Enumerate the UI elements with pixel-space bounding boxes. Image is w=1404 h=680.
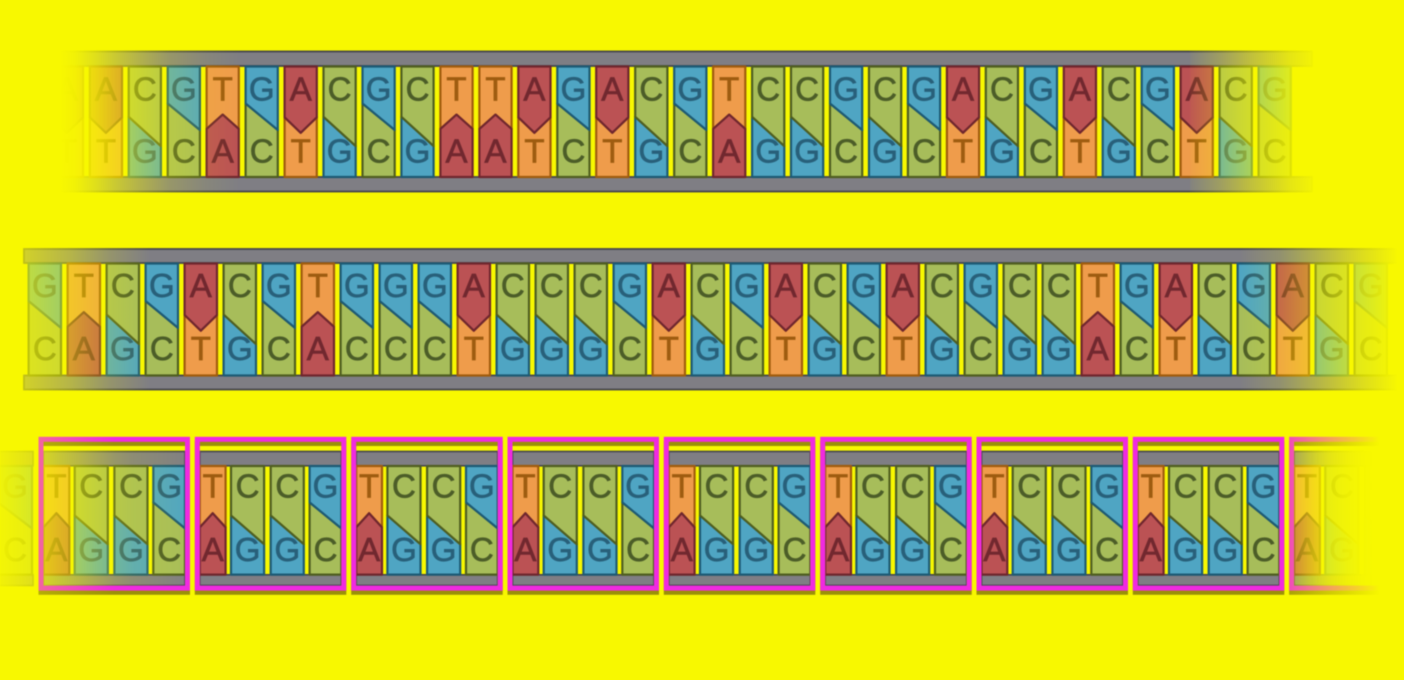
svg-text:T: T <box>1141 468 1161 505</box>
svg-text:T: T <box>515 468 535 505</box>
svg-text:G: G <box>1124 267 1150 304</box>
svg-text:G: G <box>1212 531 1238 568</box>
svg-text:A: A <box>1069 71 1091 108</box>
svg-text:C: C <box>367 133 391 170</box>
svg-text:C: C <box>345 330 369 367</box>
svg-text:C: C <box>314 531 338 568</box>
svg-text:G: G <box>1202 330 1228 367</box>
svg-text:G: G <box>968 267 994 304</box>
svg-text:A: A <box>190 267 212 304</box>
svg-text:C: C <box>1008 267 1032 304</box>
svg-text:G: G <box>755 133 781 170</box>
svg-text:C: C <box>250 133 274 170</box>
svg-text:A: A <box>202 531 224 568</box>
svg-text:C: C <box>1095 531 1119 568</box>
svg-text:C: C <box>540 267 564 304</box>
svg-text:A: A <box>358 531 380 568</box>
svg-text:C: C <box>756 71 780 108</box>
svg-text:T: T <box>524 133 544 170</box>
svg-text:A: A <box>1140 531 1162 568</box>
svg-text:T: T <box>1070 133 1090 170</box>
svg-text:G: G <box>561 71 587 108</box>
svg-text:G: G <box>235 531 261 568</box>
svg-text:G: G <box>149 267 175 304</box>
svg-text:C: C <box>1125 330 1149 367</box>
svg-text:C: C <box>548 468 572 505</box>
svg-text:C: C <box>275 468 299 505</box>
svg-text:A: A <box>983 531 1005 568</box>
svg-text:C: C <box>852 330 876 367</box>
svg-text:G: G <box>266 267 292 304</box>
svg-text:A: A <box>1165 267 1187 304</box>
svg-text:T: T <box>1166 330 1186 367</box>
svg-text:A: A <box>601 71 623 108</box>
svg-text:G: G <box>911 71 937 108</box>
svg-text:G: G <box>405 133 431 170</box>
svg-text:G: G <box>704 531 730 568</box>
svg-text:G: G <box>313 468 339 505</box>
svg-text:G: G <box>734 267 760 304</box>
svg-text:T: T <box>308 267 328 304</box>
svg-text:C: C <box>618 330 642 367</box>
svg-text:C: C <box>328 71 352 108</box>
svg-text:G: G <box>227 330 253 367</box>
svg-text:T: T <box>893 330 913 367</box>
svg-text:C: C <box>384 330 408 367</box>
svg-text:C: C <box>939 531 963 568</box>
svg-text:G: G <box>500 330 526 367</box>
svg-text:G: G <box>1056 531 1082 568</box>
svg-text:G: G <box>1094 468 1120 505</box>
svg-text:G: G <box>900 531 926 568</box>
svg-text:G: G <box>1173 531 1199 568</box>
svg-text:G: G <box>578 330 604 367</box>
svg-text:C: C <box>990 71 1014 108</box>
svg-text:A: A <box>463 267 485 304</box>
svg-text:C: C <box>912 133 936 170</box>
svg-text:G: G <box>1046 330 1072 367</box>
svg-text:A: A <box>484 133 506 170</box>
svg-text:C: C <box>150 330 174 367</box>
svg-text:G: G <box>431 531 457 568</box>
svg-text:C: C <box>561 133 585 170</box>
svg-text:A: A <box>718 133 740 170</box>
svg-text:G: G <box>366 71 392 108</box>
svg-text:T: T <box>828 468 848 505</box>
svg-text:T: T <box>1088 267 1108 304</box>
svg-text:G: G <box>547 531 573 568</box>
svg-text:C: C <box>267 330 291 367</box>
svg-text:C: C <box>783 531 807 568</box>
svg-text:G: G <box>587 531 613 568</box>
svg-text:T: T <box>776 330 796 367</box>
svg-text:A: A <box>671 531 693 568</box>
svg-text:G: G <box>274 531 300 568</box>
svg-text:C: C <box>813 267 837 304</box>
svg-text:A: A <box>290 71 312 108</box>
svg-text:A: A <box>523 71 545 108</box>
svg-text:C: C <box>432 468 456 505</box>
svg-text:A: A <box>775 267 797 304</box>
svg-text:G: G <box>695 330 721 367</box>
svg-text:A: A <box>827 531 849 568</box>
svg-text:G: G <box>794 133 820 170</box>
svg-text:G: G <box>344 267 370 304</box>
svg-text:T: T <box>291 133 311 170</box>
svg-text:C: C <box>1252 531 1276 568</box>
svg-text:C: C <box>873 71 897 108</box>
svg-text:T: T <box>953 133 973 170</box>
svg-text:A: A <box>307 330 329 367</box>
svg-text:G: G <box>617 267 643 304</box>
svg-text:C: C <box>1017 468 1041 505</box>
svg-text:C: C <box>795 71 819 108</box>
svg-text:G: G <box>422 267 448 304</box>
svg-text:C: C <box>678 133 702 170</box>
svg-text:C: C <box>392 468 416 505</box>
svg-text:A: A <box>658 267 680 304</box>
svg-text:T: T <box>984 468 1004 505</box>
svg-text:C: C <box>588 468 612 505</box>
svg-text:G: G <box>833 71 859 108</box>
svg-text:T: T <box>446 71 466 108</box>
svg-text:T: T <box>719 71 739 108</box>
svg-text:T: T <box>485 71 505 108</box>
svg-text:G: G <box>327 133 353 170</box>
svg-text:C: C <box>1057 468 1081 505</box>
svg-text:C: C <box>735 330 759 367</box>
svg-text:A: A <box>445 133 467 170</box>
svg-text:A: A <box>1087 330 1109 367</box>
svg-text:C: C <box>470 531 494 568</box>
svg-text:T: T <box>359 468 379 505</box>
svg-text:G: G <box>851 267 877 304</box>
svg-text:G: G <box>1106 133 1132 170</box>
svg-text:C: C <box>501 267 525 304</box>
svg-text:G: G <box>872 133 898 170</box>
svg-text:C: C <box>744 468 768 505</box>
svg-text:C: C <box>1047 267 1071 304</box>
svg-text:G: G <box>812 330 838 367</box>
svg-text:C: C <box>626 531 650 568</box>
svg-text:G: G <box>539 330 565 367</box>
svg-text:C: C <box>1213 468 1237 505</box>
svg-text:G: G <box>743 531 769 568</box>
svg-text:C: C <box>1146 133 1170 170</box>
svg-text:G: G <box>860 531 886 568</box>
svg-text:G: G <box>677 71 703 108</box>
svg-text:C: C <box>705 468 729 505</box>
svg-text:T: T <box>191 330 211 367</box>
svg-text:G: G <box>1028 71 1054 108</box>
svg-text:T: T <box>659 330 679 367</box>
svg-text:G: G <box>1016 531 1042 568</box>
svg-text:C: C <box>236 468 260 505</box>
svg-text:C: C <box>901 468 925 505</box>
svg-text:G: G <box>638 133 664 170</box>
svg-text:G: G <box>938 468 964 505</box>
svg-text:C: C <box>639 71 663 108</box>
svg-text:G: G <box>782 468 808 505</box>
svg-text:C: C <box>1029 133 1053 170</box>
svg-text:C: C <box>930 267 954 304</box>
svg-text:G: G <box>1145 71 1171 108</box>
svg-text:G: G <box>469 468 495 505</box>
svg-text:C: C <box>1174 468 1198 505</box>
svg-text:C: C <box>1203 267 1227 304</box>
svg-text:T: T <box>602 133 622 170</box>
svg-text:C: C <box>696 267 720 304</box>
svg-text:C: C <box>834 133 858 170</box>
svg-text:A: A <box>952 71 974 108</box>
svg-text:C: C <box>861 468 885 505</box>
svg-text:T: T <box>672 468 692 505</box>
svg-text:G: G <box>625 468 651 505</box>
svg-text:C: C <box>423 330 447 367</box>
svg-text:G: G <box>391 531 417 568</box>
svg-text:G: G <box>1251 468 1277 505</box>
svg-text:C: C <box>228 267 252 304</box>
svg-text:G: G <box>1007 330 1033 367</box>
svg-text:A: A <box>892 267 914 304</box>
svg-text:T: T <box>464 330 484 367</box>
svg-text:T: T <box>203 468 223 505</box>
svg-text:G: G <box>383 267 409 304</box>
svg-text:A: A <box>514 531 536 568</box>
svg-text:C: C <box>579 267 603 304</box>
svg-text:C: C <box>969 330 993 367</box>
svg-text:G: G <box>249 71 275 108</box>
svg-text:C: C <box>406 71 430 108</box>
svg-text:G: G <box>929 330 955 367</box>
svg-text:G: G <box>989 133 1015 170</box>
svg-text:C: C <box>1107 71 1131 108</box>
